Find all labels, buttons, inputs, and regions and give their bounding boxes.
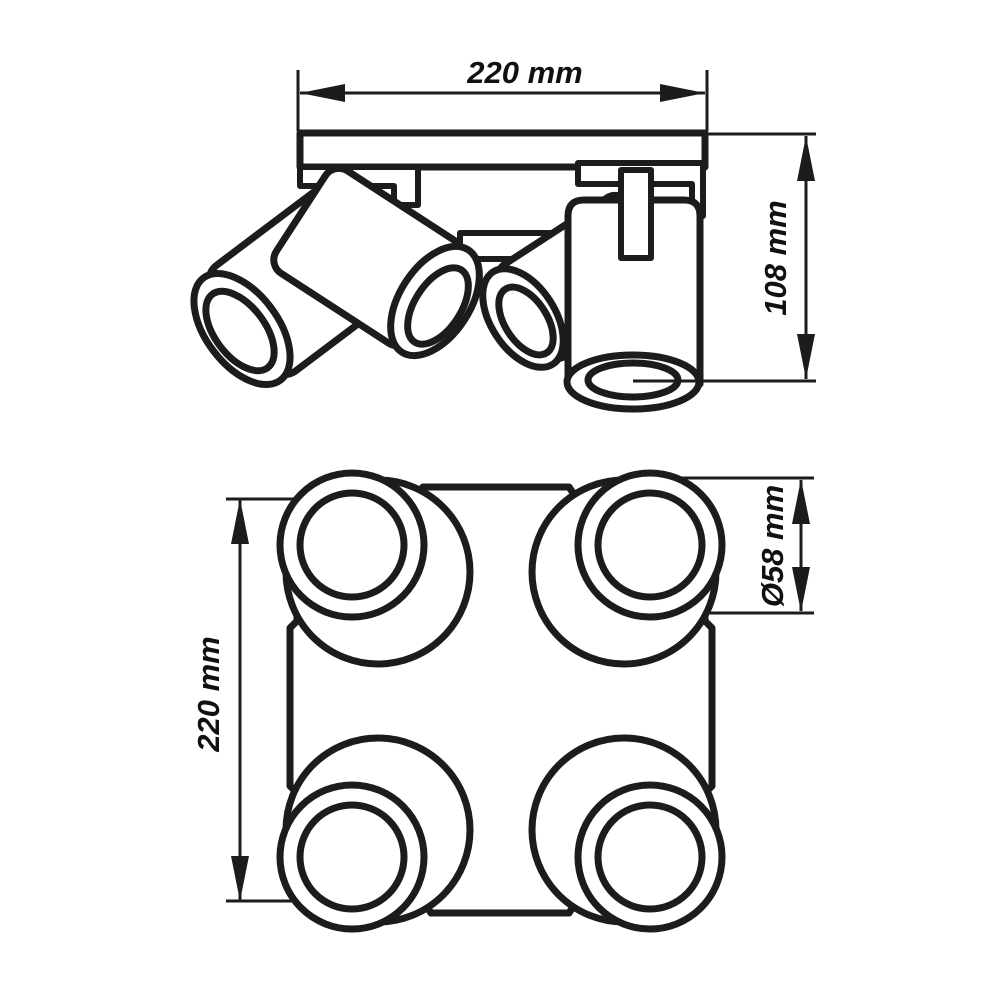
arrowhead-right bbox=[660, 84, 705, 102]
side-height-label: 108 mm bbox=[758, 200, 793, 315]
plan-height-dimension: 220 mm bbox=[191, 499, 249, 901]
arrowhead-down bbox=[797, 334, 815, 379]
technical-drawing-page: 220 mm bbox=[0, 0, 1000, 1000]
side-view: 220 mm bbox=[175, 55, 816, 409]
spot-aperture-bottom-right bbox=[598, 805, 702, 909]
plan-height-label: 220 mm bbox=[191, 636, 226, 752]
spotlight-dimension-drawing: 220 mm bbox=[0, 0, 1000, 1000]
arrowhead-down bbox=[792, 567, 810, 612]
side-width-label: 220 mm bbox=[466, 55, 582, 90]
arrowhead-up bbox=[797, 136, 815, 181]
spot-aperture-top-left bbox=[300, 493, 404, 597]
side-width-dimension: 220 mm bbox=[298, 55, 707, 131]
spot-diameter-label: Ø58 mm bbox=[755, 485, 790, 607]
arrowhead-up bbox=[792, 479, 810, 524]
arrowhead-left bbox=[300, 84, 345, 102]
spot-aperture-bottom-left bbox=[300, 805, 404, 909]
arrowhead-up bbox=[231, 499, 249, 544]
spot-right-vertical bbox=[567, 170, 700, 409]
spot-stem bbox=[621, 170, 651, 258]
arrowhead-down bbox=[231, 856, 249, 901]
spot-aperture-top-right bbox=[598, 493, 702, 597]
plan-view: 220 mm Ø58 mm bbox=[191, 473, 814, 929]
spot-diameter-dimension: Ø58 mm bbox=[710, 479, 814, 613]
